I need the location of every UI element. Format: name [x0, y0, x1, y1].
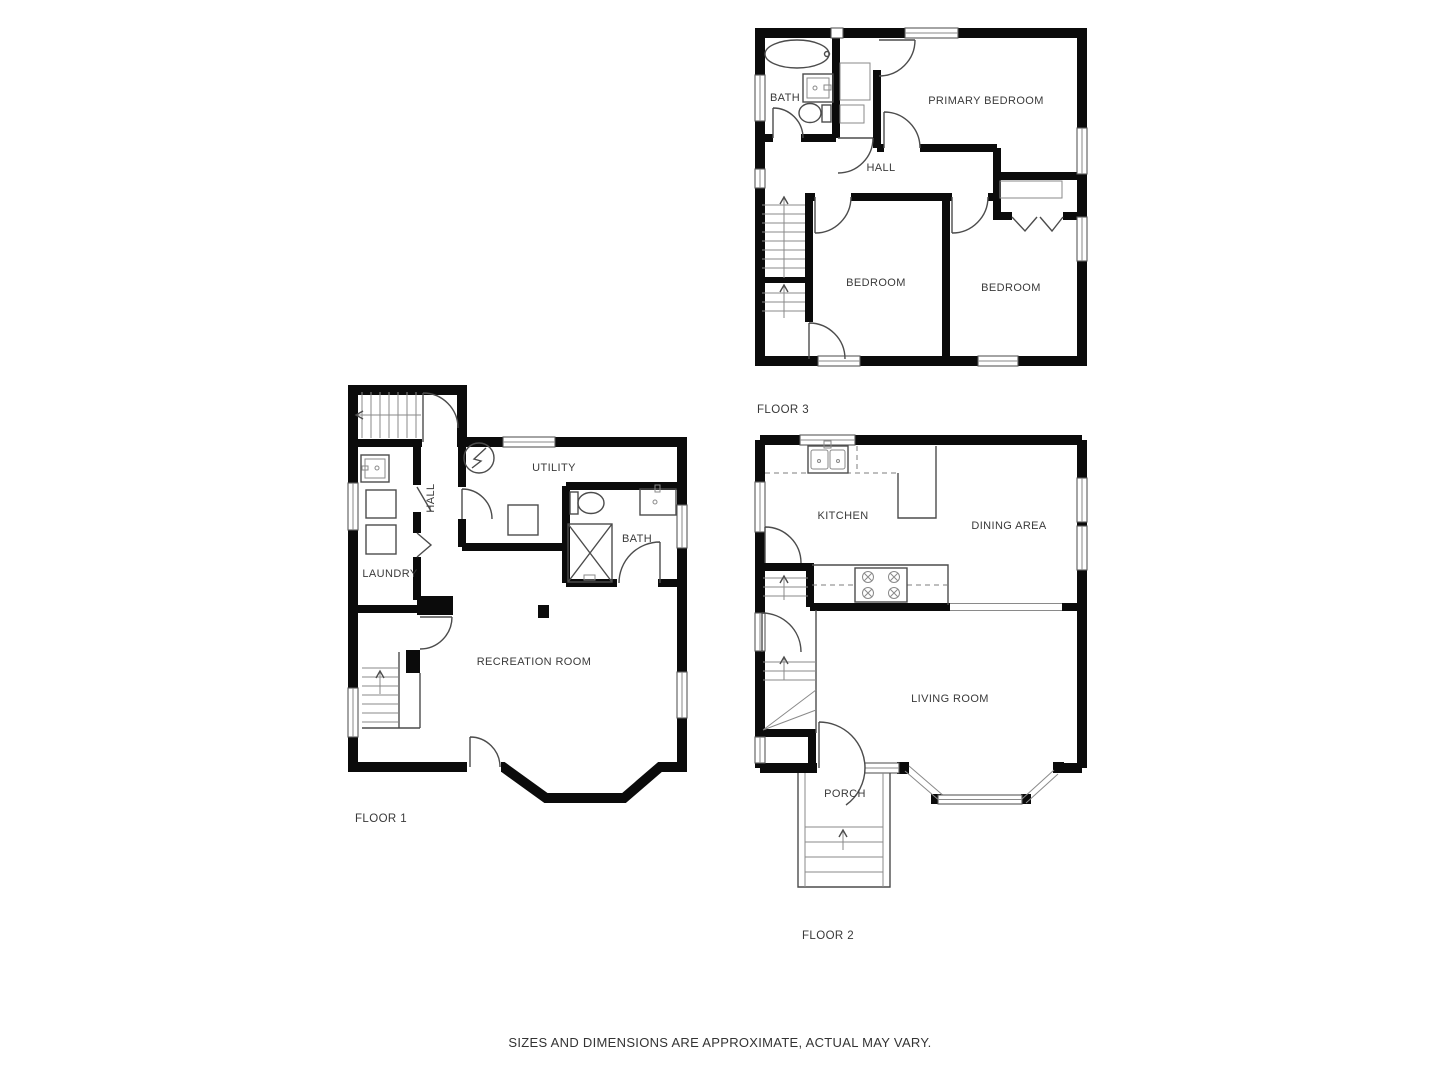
- room-label-floor3-bedroom-left: BEDROOM: [846, 277, 906, 289]
- floor-2-plan: KITCHEN DINING AREA LIVING ROOM PORCH FL…: [755, 435, 1087, 942]
- floor1-toilet-icon: [570, 492, 604, 514]
- room-label-floor1-bath: BATH: [622, 533, 652, 545]
- room-label-floor3-primary-bedroom: PRIMARY BEDROOM: [928, 95, 1044, 107]
- room-label-floor3-bedroom-right: BEDROOM: [981, 282, 1041, 294]
- kitchen-sink-icon: [808, 441, 848, 473]
- room-label-floor3-hall: HALL: [866, 162, 895, 174]
- dryer-icon: [366, 525, 396, 554]
- floor-2-label: FLOOR 2: [802, 930, 854, 942]
- furnace-icon: [508, 505, 538, 535]
- room-label-floor1-hall: HALL: [425, 483, 437, 512]
- laundry-sink-icon: [361, 455, 389, 482]
- room-label-floor2-kitchen: KITCHEN: [817, 510, 868, 522]
- bifold-closet-doors-icon: [1000, 181, 1063, 231]
- floorplan-page: BATH PRIMARY BEDROOM HALL BEDROOM BEDROO…: [0, 0, 1440, 1080]
- floor3-staircase: [762, 196, 805, 318]
- washer-icon: [366, 490, 396, 518]
- room-label-floor1-utility: UTILITY: [532, 462, 576, 474]
- water-heater-icon: [464, 443, 494, 473]
- floor1-bathroom-sink-icon: [640, 485, 676, 515]
- floorplan-canvas: BATH PRIMARY BEDROOM HALL BEDROOM BEDROO…: [0, 0, 1440, 1080]
- disclaimer-text: SIZES AND DIMENSIONS ARE APPROXIMATE, AC…: [508, 1035, 931, 1050]
- floor1-doors: [417, 393, 660, 773]
- floor3-closet-shelves: [840, 63, 870, 123]
- countertop: [765, 446, 948, 605]
- bathroom-sink-icon: [803, 74, 833, 102]
- toilet-icon: [799, 104, 831, 123]
- stove-icon: [855, 568, 907, 602]
- floor2-interior-walls: [760, 563, 1082, 768]
- floor-3-plan: BATH PRIMARY BEDROOM HALL BEDROOM BEDROO…: [755, 28, 1087, 416]
- floor-3-label: FLOOR 3: [757, 404, 809, 416]
- bathtub-icon: [765, 40, 830, 68]
- floor1-staircase-up: [356, 392, 421, 438]
- room-label-floor2-living: LIVING ROOM: [911, 693, 989, 705]
- room-label-floor3-bath: BATH: [770, 92, 800, 104]
- floor1-outer-walls: [353, 390, 682, 798]
- shower-icon: [568, 524, 612, 582]
- floor-1-plan: UTILITY HALL LAUNDRY BATH RECREATION ROO…: [348, 390, 687, 825]
- floor1-interior-walls: [353, 442, 682, 673]
- room-label-floor1-recreation: RECREATION ROOM: [477, 656, 592, 668]
- room-label-floor2-dining: DINING AREA: [971, 520, 1047, 532]
- room-label-floor2-porch: PORCH: [824, 788, 866, 800]
- floor-1-label: FLOOR 1: [355, 813, 407, 825]
- room-label-floor1-laundry: LAUNDRY: [362, 568, 417, 580]
